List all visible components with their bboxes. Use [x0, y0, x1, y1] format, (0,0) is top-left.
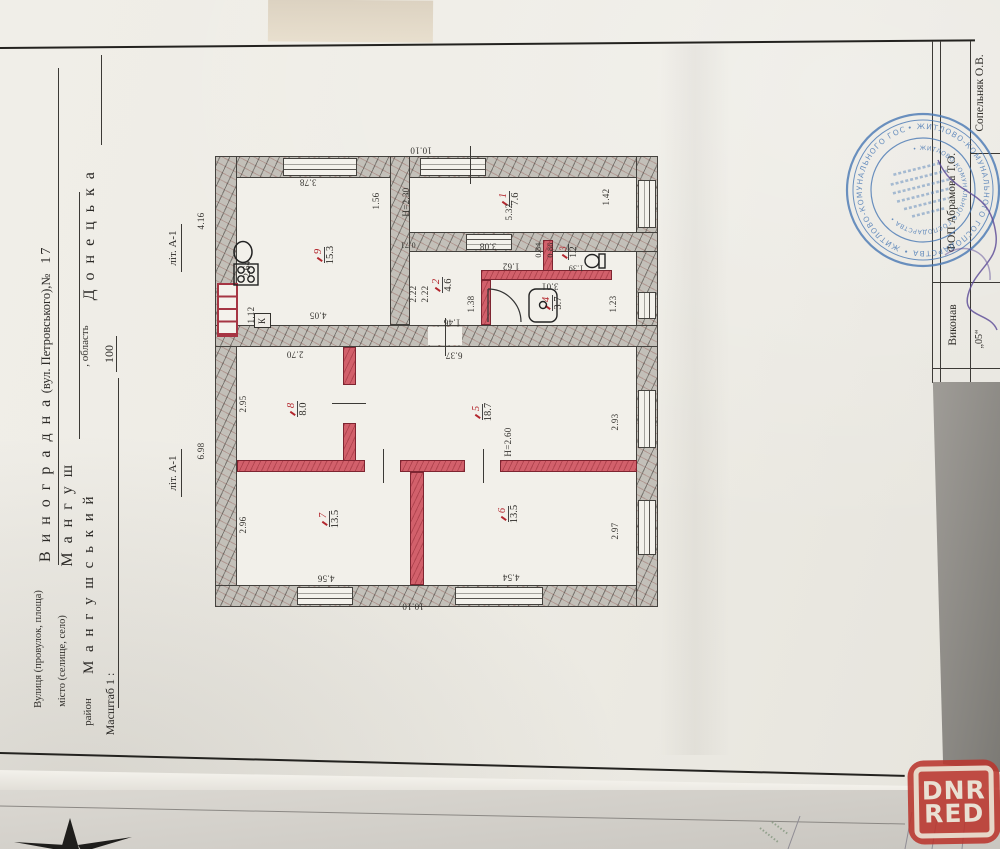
- titleblock-date: „05“: [975, 323, 986, 355]
- room-area: 13.5: [509, 505, 520, 523]
- dim-4-05: 4.05: [299, 310, 337, 319]
- street-suffix: (вул. Петровського),№: [39, 274, 53, 394]
- street-label: Вулиця (провулок, площа): [33, 565, 44, 733]
- wall-bottom: [215, 585, 658, 607]
- window-right-room5: [638, 390, 656, 448]
- room-area: 8.0: [298, 402, 309, 415]
- photo-of-floor-plan-document: Вулиця (провулок, площа) В и н о г р а д…: [0, 0, 1000, 849]
- dim-4-56: 4.56: [309, 573, 343, 582]
- dim-1-42: 1.42: [602, 182, 611, 212]
- dim-1-38: 1.38: [467, 289, 476, 319]
- city-label: місто (селище, село): [57, 590, 68, 732]
- boiler-letter: К: [257, 317, 267, 323]
- room-label-9: 915.3: [309, 242, 336, 268]
- dim-1-39: 1.39: [562, 263, 590, 271]
- stamp-inner-ring-text: • ЖИТЛОВО-КОМУНАЛЬНОГО ГОСПОДАРСТВА •: [873, 135, 977, 243]
- plan-interior: [215, 156, 658, 607]
- titleblock-divider: [970, 41, 971, 383]
- room-label-8: 88.0: [282, 396, 309, 422]
- room-area: 4.6: [443, 278, 454, 291]
- room-area: 3.7: [553, 296, 564, 309]
- dim-1-56: 1.56: [372, 186, 381, 216]
- partition-bath-top: [481, 270, 612, 280]
- street-value: В и н о г р а д н а: [37, 397, 54, 562]
- underlying-papers: [0, 790, 1000, 849]
- dim-1-12: 1.12: [247, 298, 256, 332]
- background-object-top: [268, 0, 433, 43]
- dim-6-37: 6.37: [437, 350, 471, 359]
- dim-2-97: 2.97: [611, 514, 620, 548]
- lit-label-lower: літ. А-1: [168, 449, 182, 497]
- house-number: 17: [39, 240, 54, 270]
- partition-8-5-upper: [343, 347, 356, 385]
- scale-label: Масштаб 1 :: [104, 648, 117, 760]
- window-top-veranda: [420, 158, 486, 176]
- dim-2-70: 2.70: [278, 349, 312, 358]
- dim-2-22-a: 2.22: [409, 279, 418, 309]
- dnr-red-watermark-inner: DNR RED: [913, 765, 994, 838]
- window-right-bath: [638, 292, 656, 319]
- scale-underline: [118, 378, 119, 708]
- svg-text:• ЖИТЛОВО-КОМУНАЛЬНОГО ГОСПОДА: • ЖИТЛОВО-КОМУНАЛЬНОГО ГОСПОДАРСТВА •: [873, 135, 977, 243]
- window-top-kitchen: [283, 158, 357, 176]
- room-area: 13.5: [330, 510, 341, 528]
- room-number: 9: [313, 247, 325, 263]
- room-number: 8: [286, 401, 298, 417]
- titleblock-company: ФОП Абрамова Т.О.: [946, 125, 958, 280]
- paper-crease: [660, 45, 730, 755]
- room-label-2: 24.6: [427, 272, 454, 298]
- dnr-red-watermark: DNR RED: [907, 759, 1000, 845]
- titleblock-bottom: [932, 368, 1000, 369]
- room-label-5: 518.7: [467, 399, 494, 425]
- dim-3-01: 3.01: [535, 281, 565, 290]
- wall-left: [215, 156, 237, 607]
- window-left-red: [217, 283, 238, 337]
- district-value: М а н г у ш с ь к и й: [82, 468, 98, 700]
- dim-6-98: 6.98: [197, 430, 206, 472]
- titleblock-row-line: [932, 282, 1000, 283]
- dim-4-16: 4.16: [197, 199, 206, 243]
- window-right-room6: [638, 500, 656, 555]
- dim-tick: [383, 449, 384, 483]
- city-value: М а н г у ш: [60, 437, 77, 592]
- room-number: 4: [541, 295, 553, 311]
- partition-7-6: [410, 472, 424, 585]
- dim-0-86: 0.86: [547, 237, 555, 263]
- window-bottom-room7: [297, 587, 353, 605]
- partition-bath-left: [481, 280, 491, 325]
- dim-0-84: 0.84: [535, 237, 543, 263]
- partition-8-5-lower: [343, 423, 356, 462]
- dim-10-10-bottom: 10.10: [392, 601, 434, 610]
- window-bottom-room6: [455, 587, 543, 605]
- titleblock-border-inner: [940, 41, 941, 383]
- dim-1-23: 1.23: [609, 290, 618, 318]
- room-area: 15.3: [325, 246, 336, 264]
- watermark-line2: RED: [924, 801, 984, 825]
- titleblock-cell-line: [970, 153, 1000, 154]
- room-number: 2: [431, 277, 443, 293]
- dim-2-64: 2.64: [243, 252, 252, 286]
- street-value-line: В и н о г р а д н а (вул. Петровського),…: [38, 64, 55, 562]
- dim-2-93: 2.93: [611, 405, 620, 439]
- dim-5-32: 5.32: [505, 195, 514, 229]
- dim-10-10-top: 10.10: [400, 145, 442, 154]
- boiler-box: К: [254, 313, 271, 328]
- room-number: 7: [318, 511, 330, 527]
- wall-veranda-bottom: [390, 232, 658, 252]
- partition-horiz-c: [500, 460, 637, 472]
- room-area: 1.2: [569, 246, 578, 257]
- room-number: 5: [471, 404, 483, 420]
- dim-2-96: 2.96: [239, 508, 248, 542]
- room-label-3: 31.2: [559, 240, 579, 264]
- window-right-veranda: [638, 180, 656, 228]
- room-area: 18.7: [483, 403, 494, 421]
- dim-2-95: 2.95: [239, 387, 248, 421]
- dim-tick: [483, 449, 484, 483]
- scale-value: 100: [103, 336, 117, 372]
- titleblock-executor-name: Сопельняк О.В.: [974, 38, 986, 148]
- dim-4-54: 4.54: [494, 572, 528, 581]
- table-surface: [927, 382, 1000, 772]
- titleblock-executor-label: Виконав: [947, 294, 959, 356]
- partition-horiz-a: [237, 460, 365, 472]
- room-number: 6: [497, 506, 509, 522]
- oblast-value: Д о н е ц ь к а: [82, 144, 99, 326]
- oblast-underline: [101, 55, 102, 145]
- room-label-7: 713.5: [314, 506, 341, 532]
- dim-tick: [332, 403, 366, 404]
- dim-1-62: 1.62: [496, 261, 526, 270]
- titleblock-border: [932, 41, 933, 383]
- dim-3-08: 3.08: [473, 241, 503, 250]
- dim-2-22-b: 2.22: [421, 279, 430, 309]
- frame-line-top: [0, 39, 975, 48]
- dim-h-2-60: Н=2.60: [504, 416, 513, 468]
- room-label-4: 43.7: [537, 290, 564, 316]
- dim-h-2-30: Н=2.30: [402, 178, 411, 226]
- partition-horiz-b: [400, 460, 465, 472]
- lit-label-upper: літ. А-1: [168, 224, 182, 272]
- dim-0-71: 0.71: [396, 240, 420, 248]
- dim-3-78: 3.78: [290, 177, 326, 186]
- room-label-6: 613.5: [493, 501, 520, 527]
- dim-1-46: 1.46: [437, 317, 467, 326]
- dim-tick: [470, 146, 471, 184]
